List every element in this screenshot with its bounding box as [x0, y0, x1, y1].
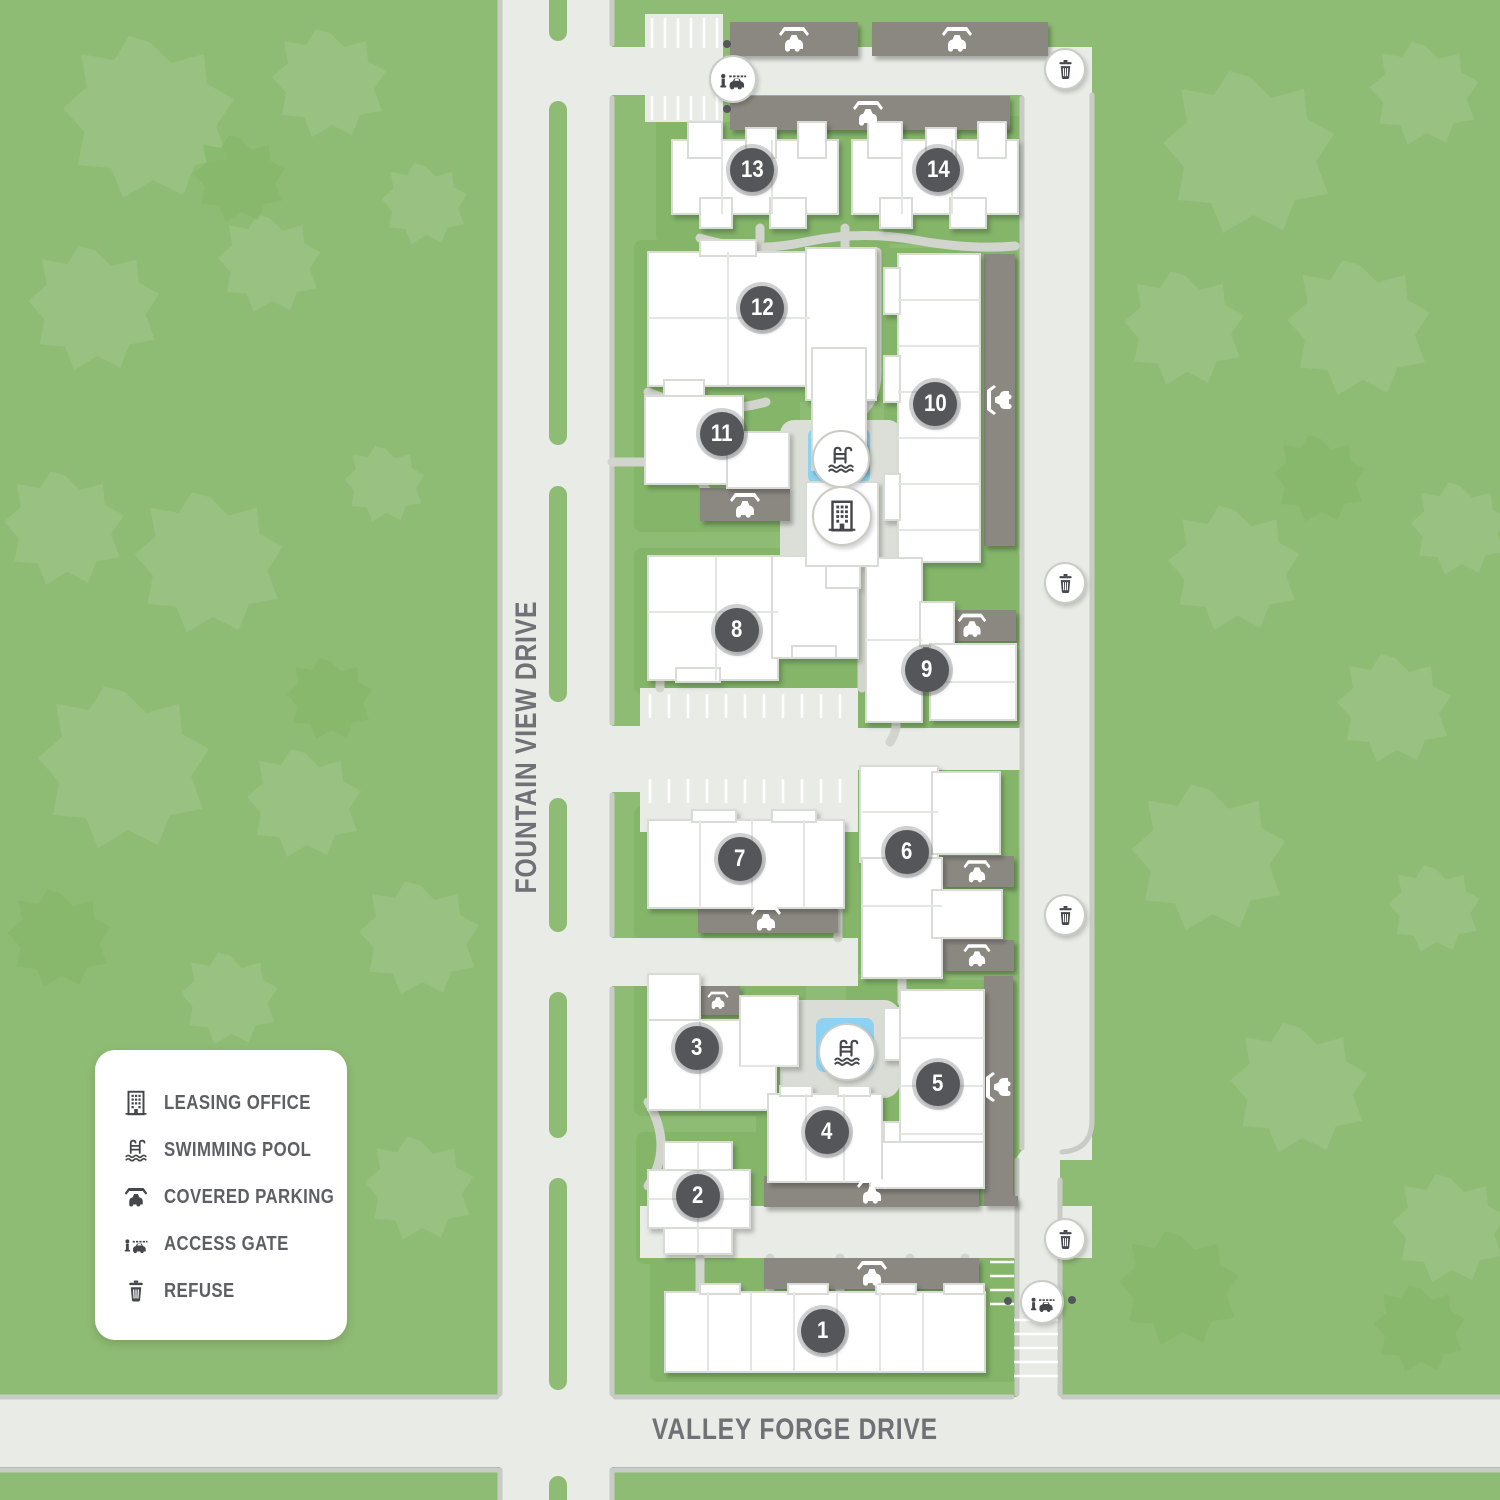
building-number: 4: [821, 1118, 832, 1146]
building-number: 6: [901, 838, 912, 866]
leasing-office-icon: [823, 497, 861, 535]
swimming-pool-marker-north[interactable]: [812, 430, 870, 488]
building-number: 3: [691, 1034, 702, 1062]
building-number: 13: [741, 156, 764, 184]
building-number: 10: [924, 390, 947, 418]
legend-label: ACCESS GATE: [164, 1233, 289, 1256]
access-gate-icon: [1027, 1287, 1058, 1318]
access-gate-icon: [121, 1229, 151, 1259]
map-legend: LEASING OFFICE SWIMMING POOL COVERED PAR…: [95, 1050, 347, 1340]
swimming-pool-icon: [829, 1034, 865, 1070]
building-marker-7[interactable]: 7: [718, 837, 762, 881]
street-label-fountain-view-drive: FOUNTAIN VIEW DRIVE: [510, 537, 544, 894]
refuse-icon: [1052, 570, 1079, 597]
legend-label: REFUSE: [164, 1280, 235, 1303]
covered-parking-icon: [121, 1182, 151, 1212]
building-number: 2: [692, 1182, 703, 1210]
building-marker-10[interactable]: 10: [913, 382, 957, 426]
site-map: 1 2 3 4 5 6 7 8 9 10 11 12 13 14 FOUNTAI…: [0, 0, 1500, 1500]
refuse-icon: [1052, 902, 1079, 929]
access-gate-icon: [716, 62, 750, 96]
building-number: 1: [817, 1317, 828, 1345]
legend-item-covered-parking: COVERED PARKING: [121, 1182, 327, 1212]
refuse-icon: [1052, 1226, 1079, 1253]
refuse-marker-2[interactable]: [1044, 562, 1086, 604]
refuse-marker-4[interactable]: [1044, 1218, 1086, 1260]
building-number: 9: [921, 656, 932, 684]
access-gate-marker-north[interactable]: [709, 55, 757, 103]
legend-item-leasing-office: LEASING OFFICE: [121, 1088, 327, 1118]
building-marker-6[interactable]: 6: [885, 830, 929, 874]
building-number: 14: [927, 156, 950, 184]
leasing-office-marker[interactable]: [812, 486, 872, 546]
street-label-valley-forge-drive: VALLEY FORGE DRIVE: [652, 1413, 1001, 1447]
east-drive-road: [1022, 47, 1092, 1160]
building-marker-1[interactable]: 1: [801, 1309, 845, 1353]
building-marker-13[interactable]: 13: [730, 148, 774, 192]
building-marker-8[interactable]: 8: [715, 608, 759, 652]
building-number: 7: [734, 845, 745, 873]
legend-label: COVERED PARKING: [164, 1186, 334, 1209]
legend-label: LEASING OFFICE: [164, 1092, 311, 1115]
legend-label: SWIMMING POOL: [164, 1139, 311, 1162]
access-gate-marker-south[interactable]: [1020, 1280, 1064, 1324]
building-number: 5: [932, 1070, 943, 1098]
building-marker-12[interactable]: 12: [740, 286, 784, 330]
legend-item-refuse: REFUSE: [121, 1276, 327, 1306]
building-number: 11: [711, 420, 733, 448]
refuse-marker-1[interactable]: [1044, 48, 1086, 90]
swimming-pool-marker-south[interactable]: [818, 1023, 876, 1081]
leasing-office-icon: [121, 1088, 151, 1118]
building-marker-5[interactable]: 5: [916, 1062, 960, 1106]
building-marker-2[interactable]: 2: [676, 1174, 720, 1218]
building-marker-11[interactable]: 11: [700, 412, 744, 456]
swimming-pool-icon: [823, 441, 859, 477]
building-marker-4[interactable]: 4: [805, 1110, 849, 1154]
east-drive-road-south: [1017, 1150, 1060, 1397]
building-marker-3[interactable]: 3: [675, 1026, 719, 1070]
refuse-icon: [121, 1276, 151, 1306]
building-number: 8: [731, 616, 742, 644]
swimming-pool-icon: [121, 1135, 151, 1165]
refuse-icon: [1052, 56, 1079, 83]
legend-item-access-gate: ACCESS GATE: [121, 1229, 327, 1259]
building-marker-14[interactable]: 14: [916, 148, 960, 192]
building-number: 12: [751, 294, 774, 322]
building-marker-9[interactable]: 9: [905, 648, 949, 692]
legend-item-swimming-pool: SWIMMING POOL: [121, 1135, 327, 1165]
refuse-marker-3[interactable]: [1044, 894, 1086, 936]
